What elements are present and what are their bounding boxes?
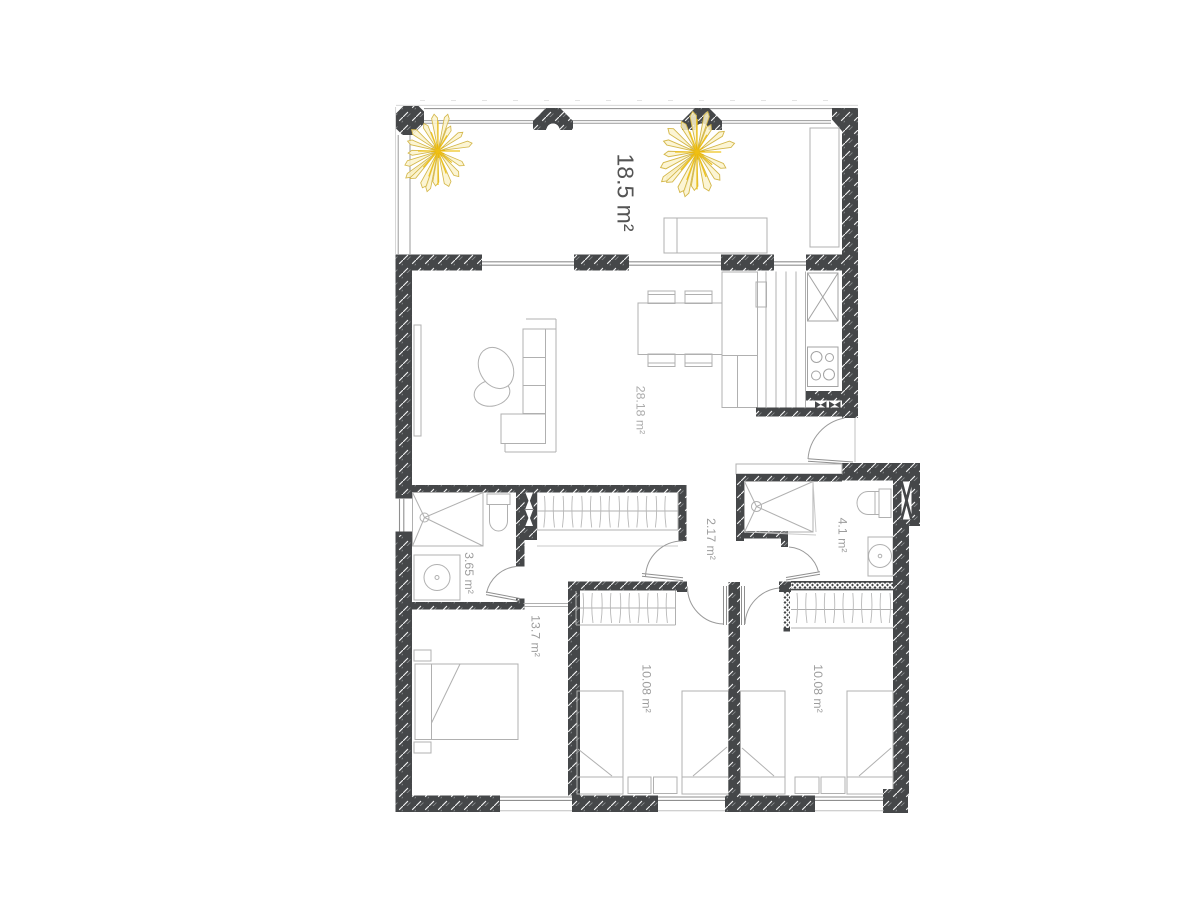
svg-text:28.18 m²: 28.18 m²: [634, 386, 648, 435]
svg-text:3.65 m²: 3.65 m²: [462, 552, 476, 594]
svg-text:10.08 m²: 10.08 m²: [811, 664, 825, 713]
svg-text:18.5 m²: 18.5 m²: [613, 154, 639, 232]
svg-text:2.17 m²: 2.17 m²: [704, 518, 718, 560]
svg-text:10.08 m²: 10.08 m²: [640, 664, 654, 713]
svg-text:4.1 m²: 4.1 m²: [836, 518, 850, 553]
svg-text:13.7 m²: 13.7 m²: [529, 615, 543, 657]
